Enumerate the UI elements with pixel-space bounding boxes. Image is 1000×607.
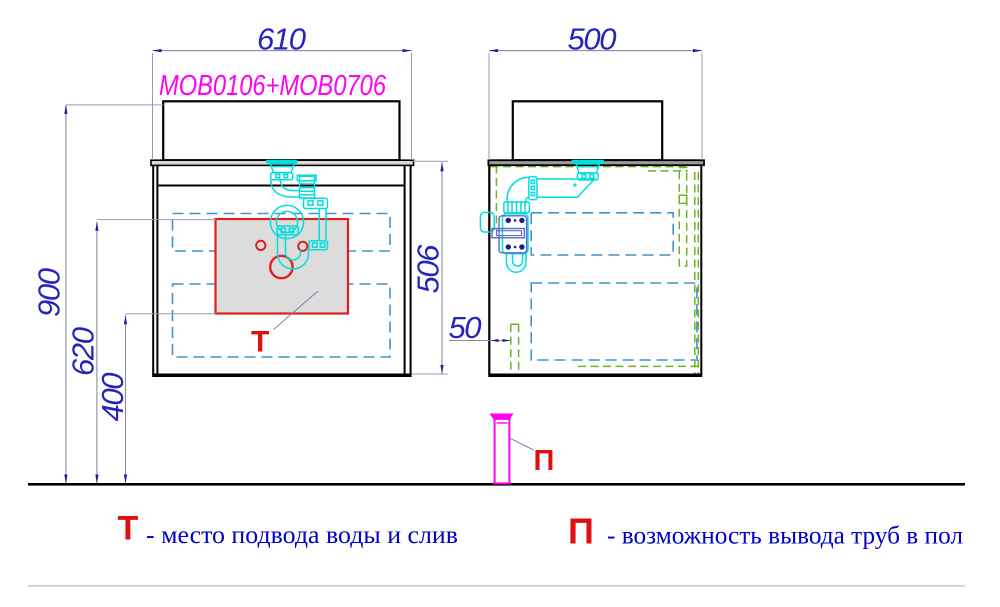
svg-text:610: 610 [257,22,306,57]
svg-text:500: 500 [568,22,617,57]
svg-text:MOB0106+MOB0706: MOB0106+MOB0706 [159,70,387,102]
svg-text:900: 900 [32,268,67,317]
svg-text:400: 400 [95,373,130,422]
svg-text:Т: Т [118,510,139,548]
svg-text:506: 506 [411,244,446,294]
svg-text:- место подвода воды и слив: - место подвода воды и слив [146,522,458,549]
svg-text:П: П [534,445,555,477]
svg-text:620: 620 [66,327,101,376]
svg-text:- возможность вывода труб в по: - возможность вывода труб в пол [607,523,963,550]
svg-text:П: П [568,511,594,552]
svg-text:Т: Т [251,326,269,359]
svg-text:50: 50 [449,310,482,345]
